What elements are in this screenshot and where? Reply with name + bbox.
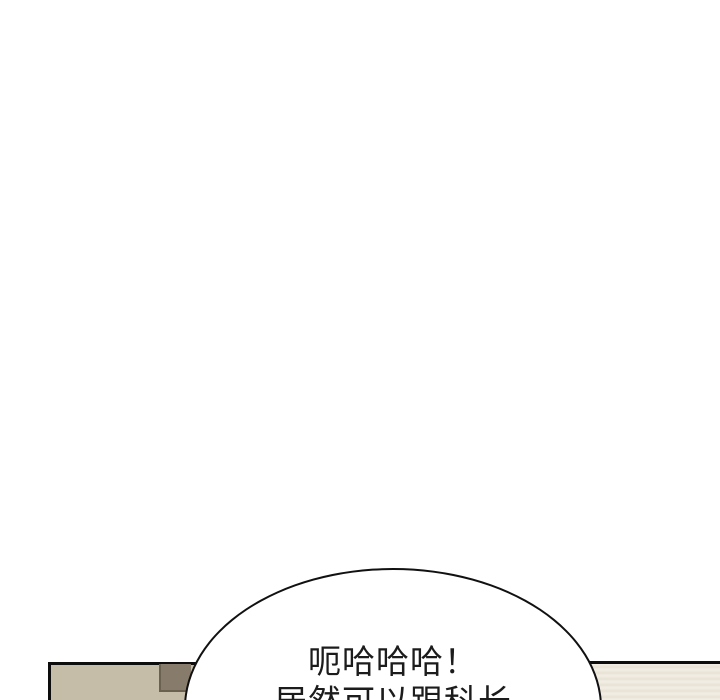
speech-line-2: 居然可以跟科长 (186, 682, 600, 700)
comic-page: 呃哈哈哈！ 居然可以跟科长 (0, 0, 720, 700)
speech-bubble-text: 呃哈哈哈！ 居然可以跟科长 (186, 642, 600, 700)
speech-bubble: 呃哈哈哈！ 居然可以跟科长 (184, 568, 602, 700)
speech-line-1: 呃哈哈哈！ (186, 642, 600, 682)
